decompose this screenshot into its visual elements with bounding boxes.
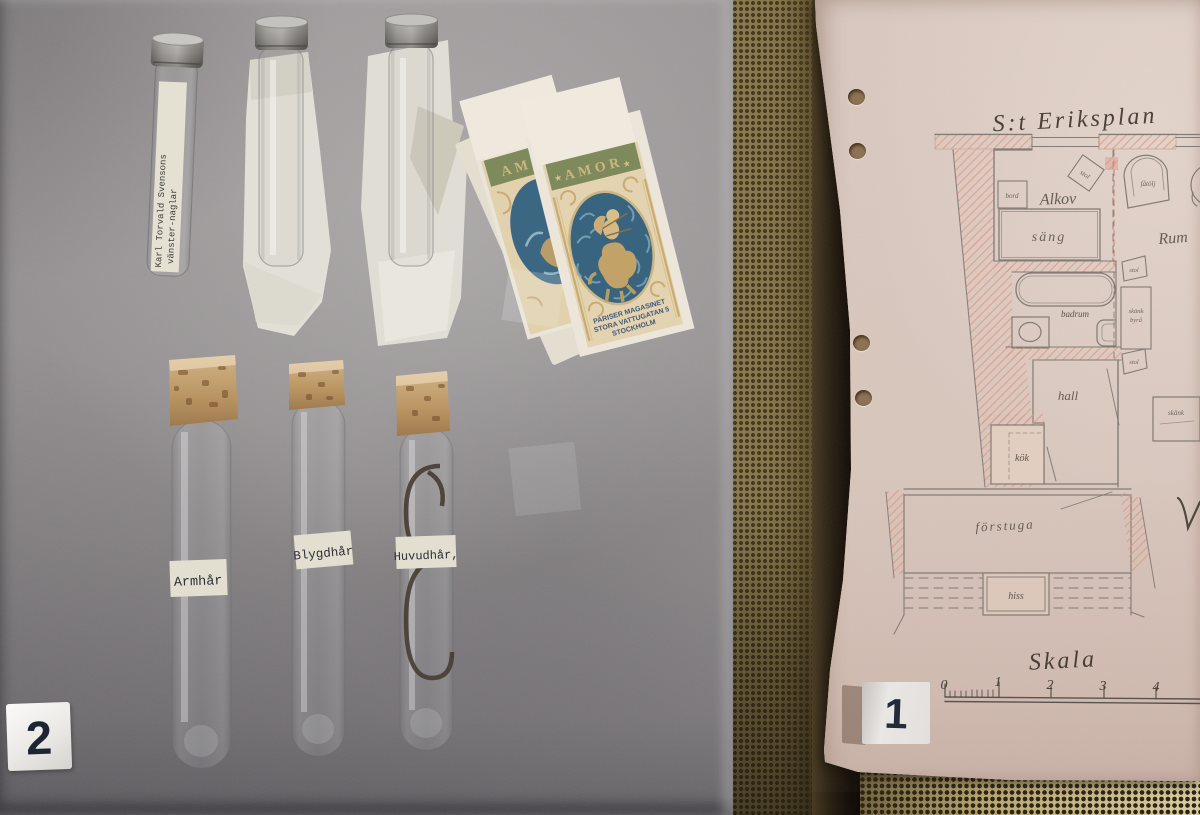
svg-text:badrum: badrum <box>1061 309 1090 319</box>
svg-text:förstuga: förstuga <box>975 516 1035 534</box>
svg-text:4: 4 <box>1153 680 1160 695</box>
svg-text:säng: säng <box>1032 230 1066 245</box>
svg-text:Huvudhår,: Huvudhår, <box>394 548 459 564</box>
svg-text:0: 0 <box>941 678 948 693</box>
svg-text:fåtölj: fåtölj <box>1141 180 1156 188</box>
svg-text:2: 2 <box>1047 678 1054 693</box>
svg-text:stol: stol <box>1129 267 1139 274</box>
svg-text:1: 1 <box>995 675 1002 690</box>
svg-text:Skala: Skala <box>1028 646 1098 676</box>
svg-text:stol: stol <box>1129 359 1139 366</box>
svg-text:kök: kök <box>1015 453 1029 464</box>
svg-text:byrå: byrå <box>1130 317 1142 324</box>
svg-text:Rum: Rum <box>1157 229 1188 248</box>
svg-text:hall: hall <box>1058 388 1079 403</box>
svg-text:bord: bord <box>1006 192 1019 200</box>
svg-text:3: 3 <box>1099 679 1107 694</box>
svg-text:skänk: skänk <box>1168 409 1185 417</box>
svg-text:Armhår: Armhår <box>174 574 223 591</box>
svg-text:stol: stol <box>1078 168 1091 180</box>
svg-text:hiss: hiss <box>1008 591 1024 602</box>
svg-text:Alkov: Alkov <box>1039 190 1078 208</box>
svg-text:skänk: skänk <box>1129 308 1144 315</box>
svg-text:S:t Eriksplan: S:t Eriksplan <box>992 103 1158 138</box>
